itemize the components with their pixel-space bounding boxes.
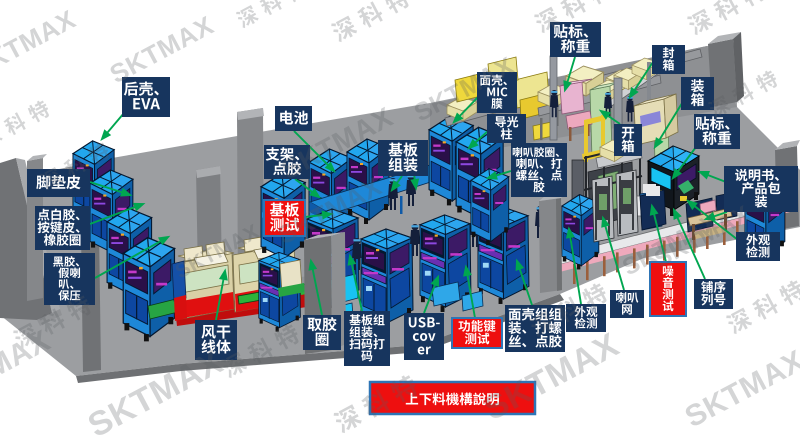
svg-text:SKTMAX: SKTMAX <box>680 344 800 434</box>
svg-text:SKTMAX: SKTMAX <box>0 4 81 84</box>
